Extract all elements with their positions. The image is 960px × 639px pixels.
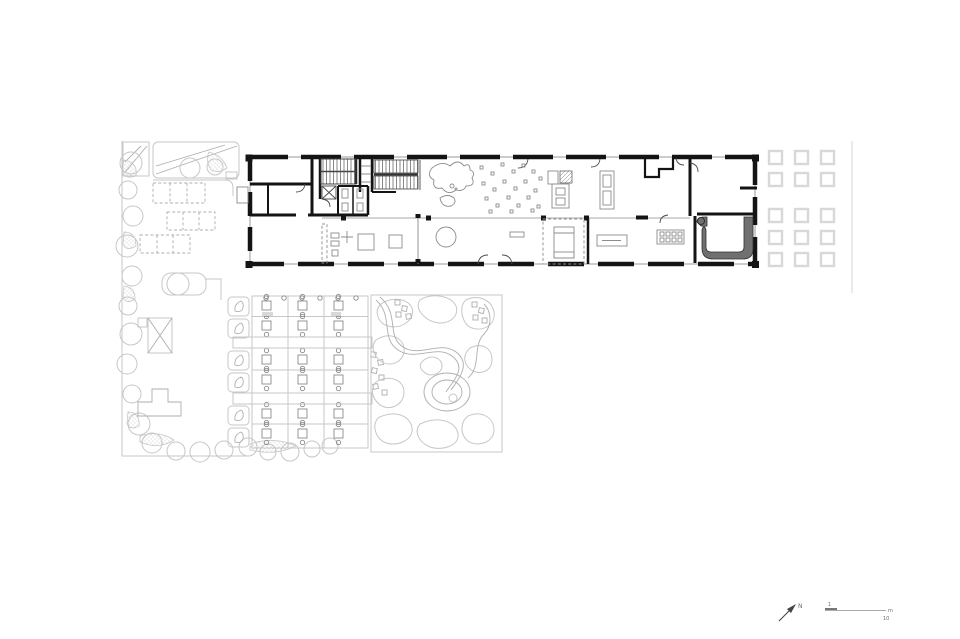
stepped-path [138,389,181,416]
tree-icon [180,158,200,178]
scale-start-label: 1 [828,602,831,608]
planter-column [228,297,249,447]
north-arrow: N [779,603,803,621]
scale-unit-label: m [888,608,893,614]
kitchen-counter [548,171,572,208]
round-table [436,227,456,247]
staircase-1 [321,159,356,184]
entrance-canopy [237,187,248,203]
bench [262,312,273,316]
elevator [322,186,336,199]
scale-end-label: 10 [883,616,889,622]
grid-display [657,230,684,244]
bench [510,232,524,237]
low-table [597,235,627,246]
display-case [600,171,614,209]
shrub-hatch [250,440,296,452]
garden-boundary [122,141,250,456]
shrub-hatch [140,434,174,446]
meander-garden [371,295,502,452]
north-label: N [798,603,803,610]
shrub-hatch [123,232,136,249]
winding-path [376,297,490,411]
bed-area [543,219,584,264]
workstation [322,224,353,263]
rug [358,234,374,250]
staircase-2 [361,160,418,189]
column-grid [769,151,834,266]
bench [331,312,341,316]
curved-ramp [697,217,753,259]
garden-tank [162,273,221,300]
pergola-strip [233,337,372,348]
floor-plan-page: N 1 m 10 [0,0,960,639]
gallery-sketch [429,162,473,206]
exhibition-dots [480,163,542,213]
shrub-hatch [207,152,227,172]
path-detail [449,394,457,402]
scale-bar: 1 m 10 [825,602,893,622]
floor-plan-drawing: N 1 m 10 [0,0,960,639]
planting-grid-dashed [140,183,215,253]
building-floor-plan [237,155,759,269]
rug [389,235,402,248]
shrub-hatch [122,160,136,177]
shrub-hatch [123,286,135,302]
shrub-hatch [127,412,139,428]
garden-west [116,141,338,462]
landscape-contours [372,296,494,449]
terrace-seating [228,294,387,448]
